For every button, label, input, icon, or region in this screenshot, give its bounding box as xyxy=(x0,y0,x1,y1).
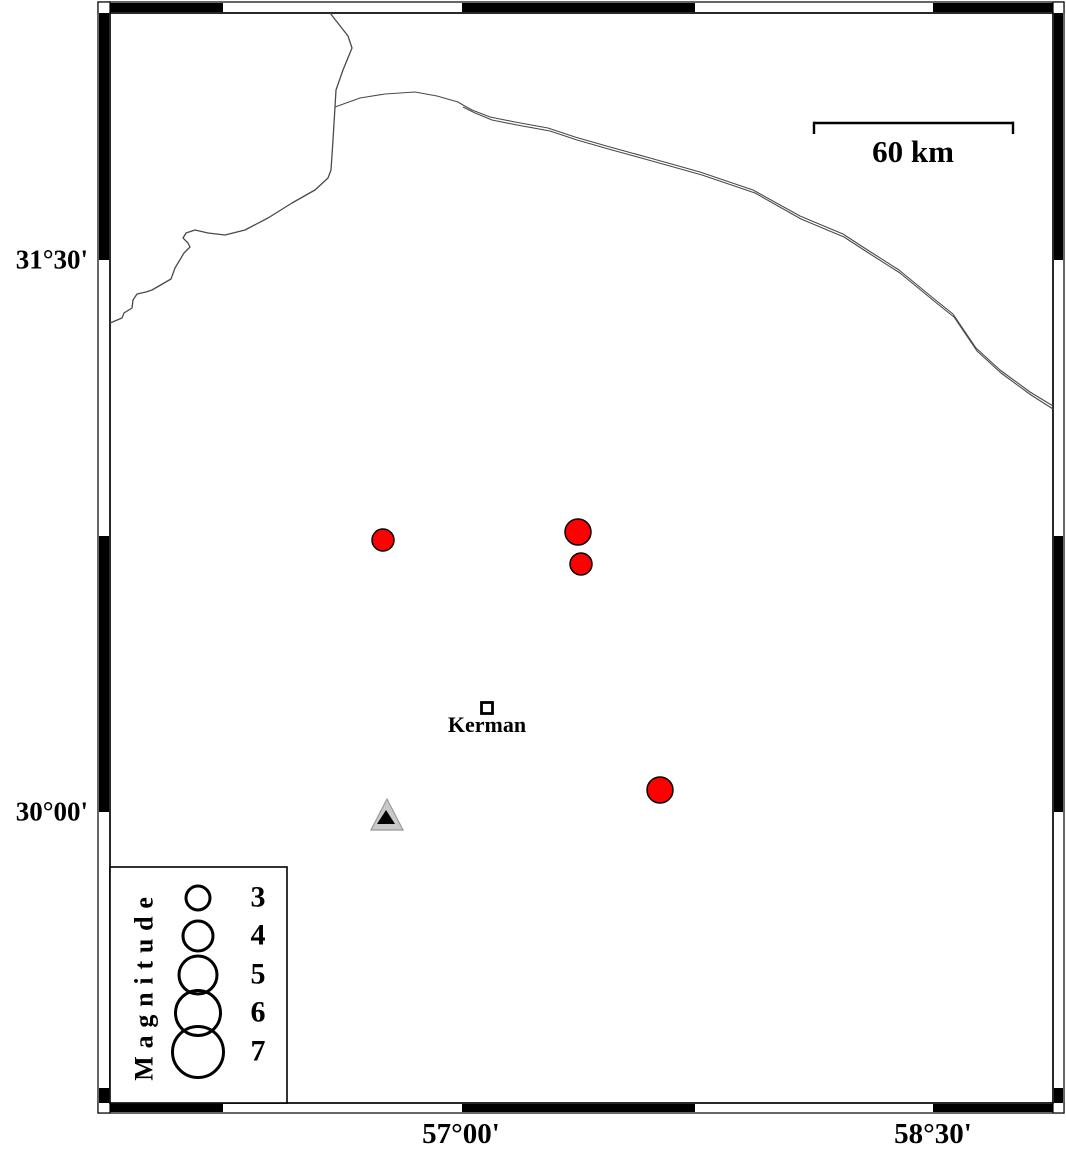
frame-tick-left xyxy=(99,13,109,260)
legend-title-magnitude: Magnitude xyxy=(130,889,157,1081)
frame-tick-top xyxy=(933,3,1053,12)
frame-tick-bottom xyxy=(933,1104,1053,1112)
lon-label-57-00: 57°00' xyxy=(422,1119,500,1149)
frame-tick-bottom xyxy=(462,1104,695,1112)
lon-label-58-30: 58°30' xyxy=(894,1119,972,1149)
map-figure: 31°30' 30°00' 57°00' 58°30' 60 km Kerman… xyxy=(0,0,1066,1153)
legend-label-m4: 4 xyxy=(251,920,266,952)
map-drawing xyxy=(0,0,1066,1153)
scalebar-label: 60 km xyxy=(872,136,954,169)
road-line-lower xyxy=(463,107,1053,409)
frame-tick-right xyxy=(1054,1088,1063,1103)
frame-tick-top xyxy=(110,3,223,12)
legend-label-m3: 3 xyxy=(251,882,266,914)
lat-label-30-00: 30°00' xyxy=(0,797,88,825)
city-label-kerman: Kerman xyxy=(448,713,526,736)
frame-tick-bottom xyxy=(110,1104,223,1112)
legend-label-m6: 6 xyxy=(251,997,266,1029)
frame-tick-left xyxy=(99,1088,109,1103)
lat-label-31-30: 31°30' xyxy=(0,245,88,273)
frame-tick-left xyxy=(99,536,109,812)
legend-label-m7: 7 xyxy=(251,1036,266,1068)
earthquake-marker xyxy=(570,553,592,575)
frame-tick-right xyxy=(1054,13,1063,260)
earthquake-marker xyxy=(647,777,673,803)
frame-tick-right xyxy=(1054,536,1063,812)
earthquake-marker xyxy=(372,529,394,551)
province-border-line xyxy=(110,13,352,323)
legend-label-m5: 5 xyxy=(251,959,266,991)
frame-tick-top xyxy=(462,3,695,12)
earthquake-marker xyxy=(565,519,591,545)
